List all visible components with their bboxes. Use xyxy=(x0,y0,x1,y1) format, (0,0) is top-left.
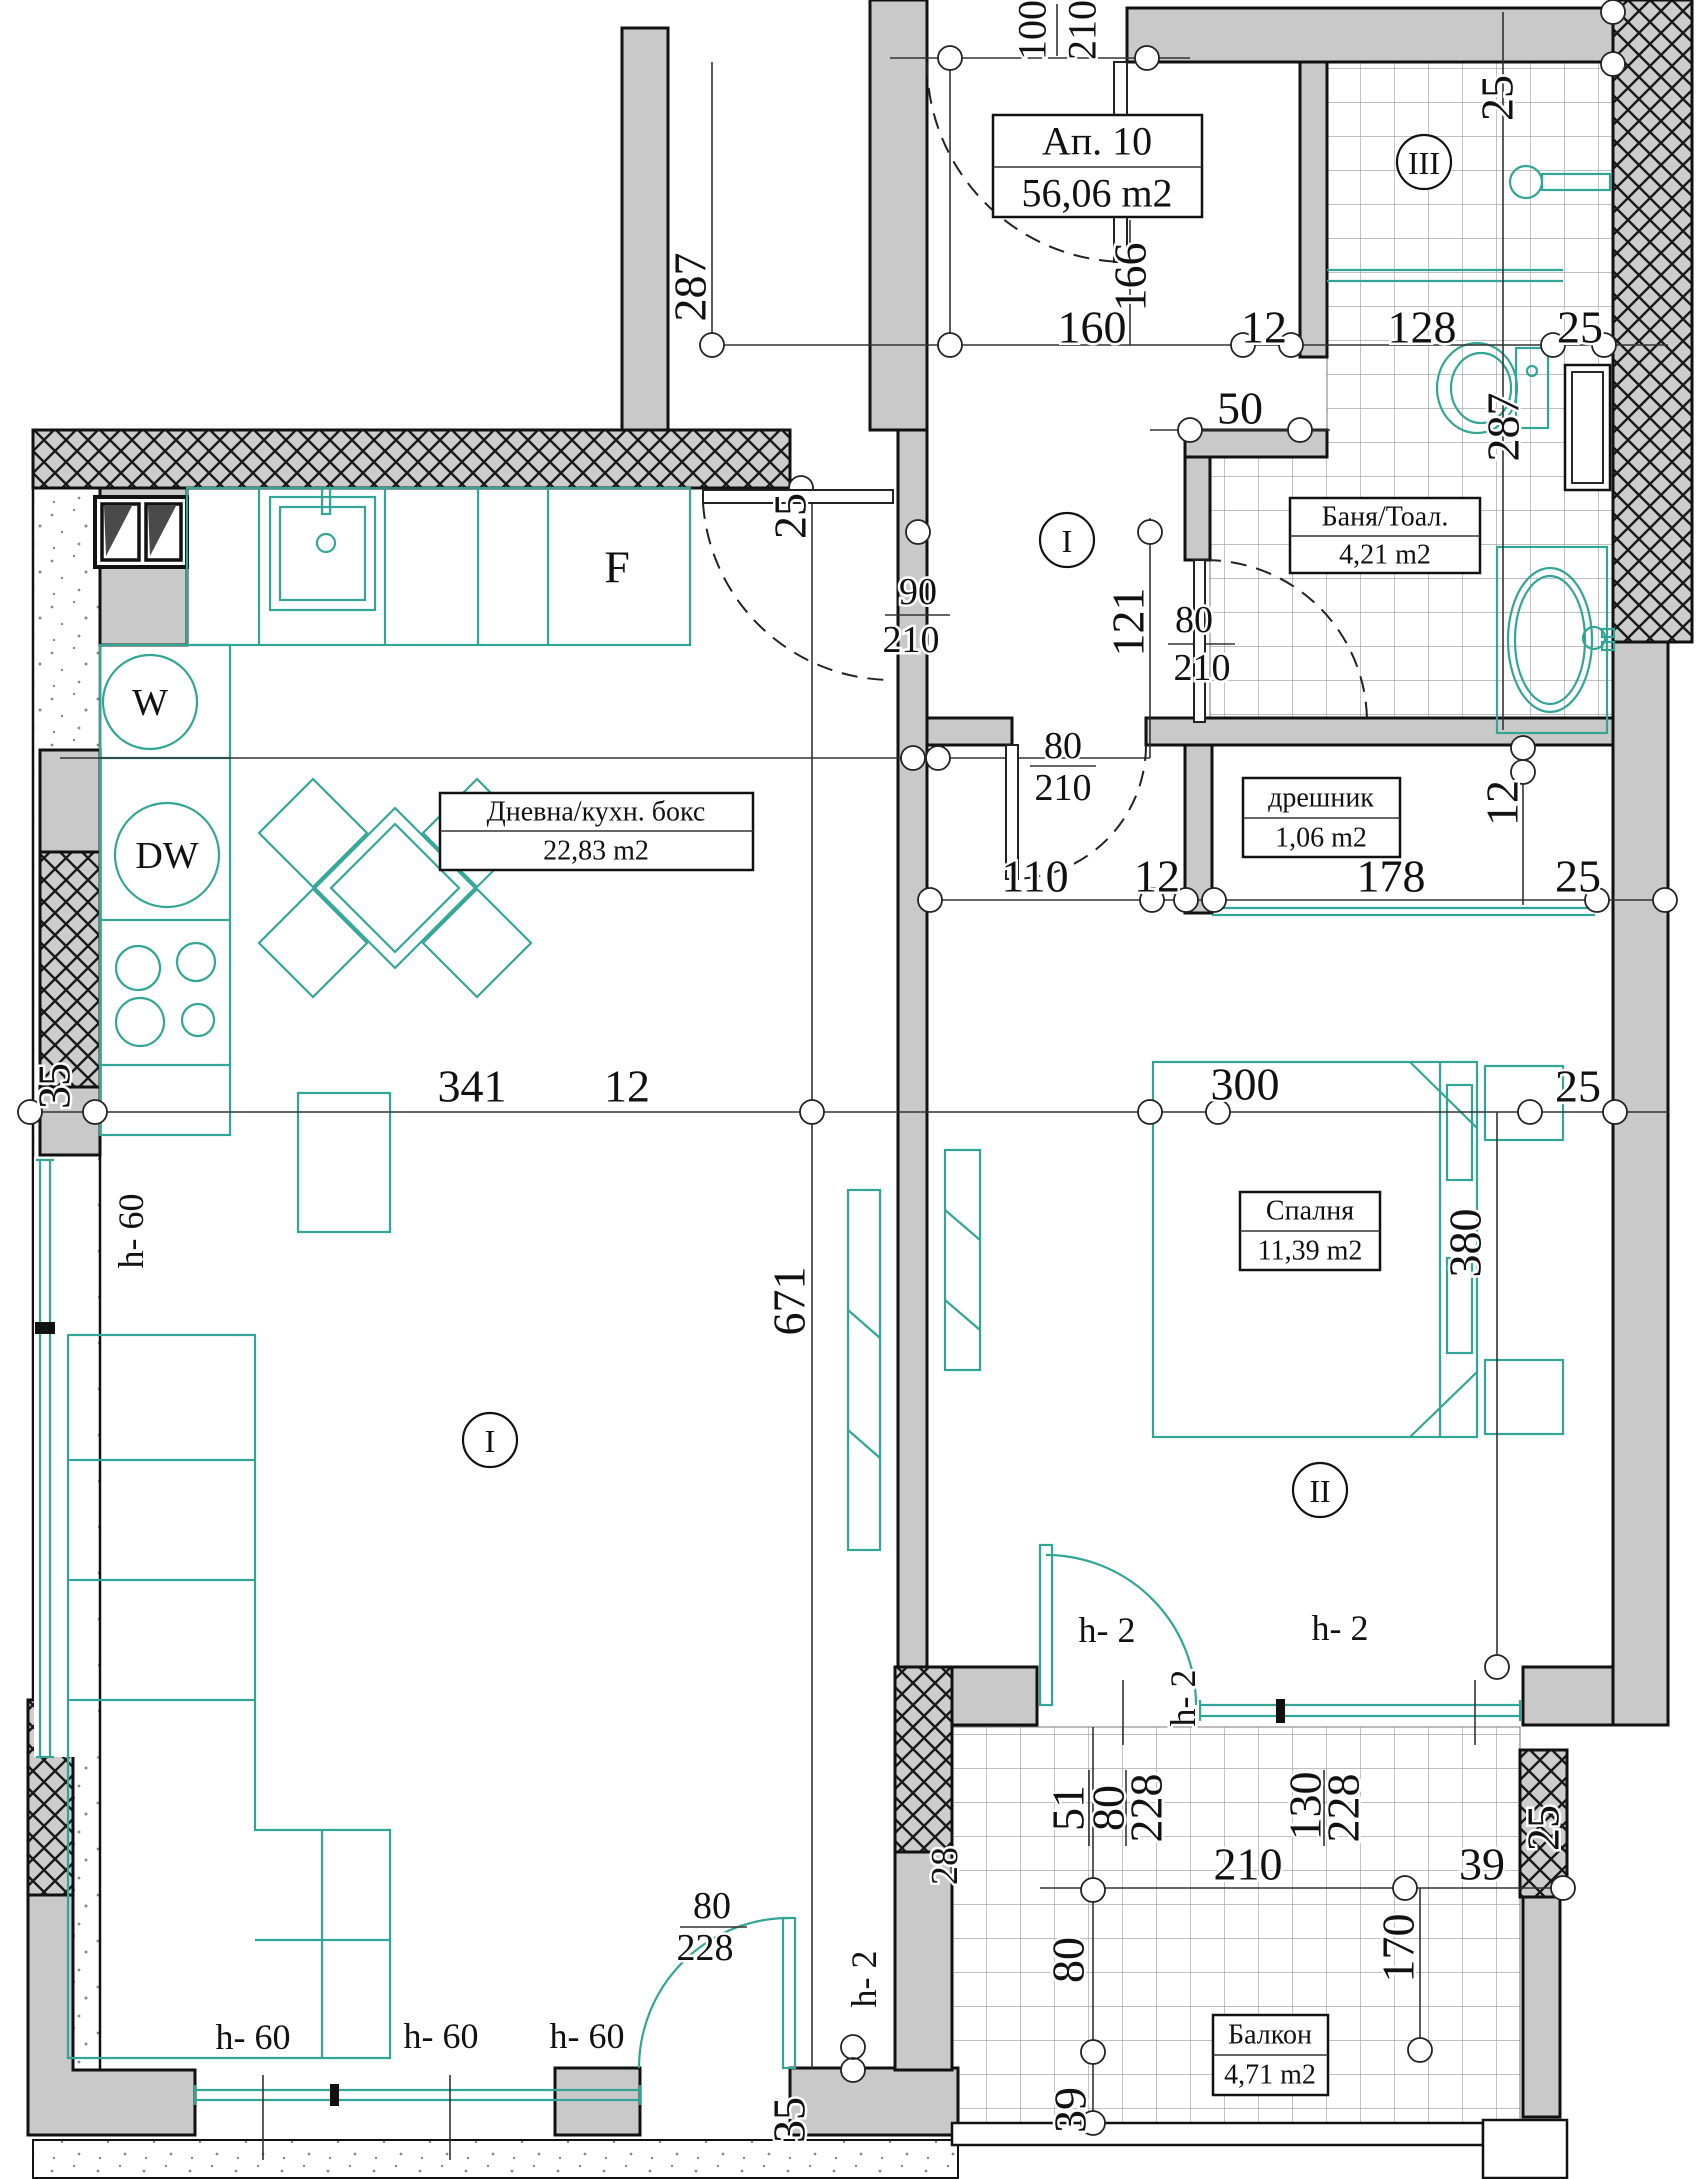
sofa xyxy=(68,1335,390,2058)
vestibule-right-wall xyxy=(870,0,927,430)
dim-label: 12 xyxy=(604,1061,650,1112)
dishwasher-letter: DW xyxy=(135,835,198,877)
dim-label: h- 2 xyxy=(1312,1608,1369,1648)
fridge-letter: F xyxy=(604,542,630,593)
bedroom-bottom-right-wall xyxy=(1523,1667,1613,1725)
tv-console-bedroom xyxy=(945,1150,980,1370)
dim-label: 671 xyxy=(764,1267,815,1336)
floor-plan-page: F W DW xyxy=(0,0,1700,2179)
stove-burners xyxy=(116,943,215,1046)
dim-label: 210 xyxy=(1214,1839,1283,1890)
balcony-corner-step xyxy=(1483,2120,1567,2178)
bathroom-door-leaf xyxy=(1194,560,1205,722)
dim-label: 25 xyxy=(765,493,816,539)
washer-letter: W xyxy=(132,682,168,724)
dim-label: 25 xyxy=(1555,851,1601,902)
room-label-bedroom: Спалня 11,39 m2 xyxy=(1240,1192,1380,1270)
dim-label: 160 xyxy=(1058,302,1127,353)
living-balcony-door-leaf xyxy=(783,1918,795,2068)
dim-label: 170 xyxy=(1373,1914,1424,1983)
vestibule-left-wall xyxy=(622,28,668,430)
dim-label: 25 xyxy=(1472,75,1523,121)
closet-rail xyxy=(1212,908,1595,915)
dim-label: 300 xyxy=(1211,1059,1280,1110)
dim-label: 25 xyxy=(1518,1805,1569,1851)
left-hatched-pier xyxy=(40,852,100,1087)
dim-label: 210 xyxy=(1174,647,1231,689)
room-label-bath: Баня/Тоал. 4,21 m2 xyxy=(1290,498,1480,573)
dim-label: 12 xyxy=(1134,851,1180,902)
bedroom-window-mullion xyxy=(1276,1699,1285,1723)
floor-plan-drawing: F W DW xyxy=(0,0,1700,2179)
dim-label: h- 2 xyxy=(844,1951,884,2008)
bedroom-name: Спалня xyxy=(1266,1196,1354,1227)
bedroom-area: 11,39 m2 xyxy=(1258,1236,1363,1267)
bottom-wall-pier-a xyxy=(555,2068,640,2135)
faucet-icon xyxy=(322,488,330,514)
bedroom-balcony-door-leaf xyxy=(1040,1545,1052,1705)
dim-label: 287 xyxy=(665,253,716,322)
balcony-area: 4,71 m2 xyxy=(1224,2060,1316,2091)
dim-label: 39 xyxy=(1459,1839,1505,1890)
radiator xyxy=(1565,365,1610,490)
dim-label: 228 xyxy=(1121,1774,1172,1843)
dim-label: 341 xyxy=(438,1061,507,1112)
dim-label: 90 xyxy=(899,571,937,613)
left-wall-gray-a xyxy=(40,750,100,852)
apartment-area: 56,06 m2 xyxy=(1021,171,1172,216)
dim-label: 210 xyxy=(1035,767,1092,809)
dim-label: h- 60 xyxy=(111,1194,151,1269)
hall-marker: I xyxy=(1062,523,1073,559)
dim-label: 35 xyxy=(764,2097,815,2143)
balcony-right-pier xyxy=(1523,1897,1560,2117)
coffee-table xyxy=(298,1093,390,1232)
dim-label: 210 xyxy=(1060,0,1105,60)
bathroom-left-upper-wall xyxy=(1300,62,1327,357)
dim-label: 228 xyxy=(1318,1774,1369,1843)
living-marker: I xyxy=(485,1423,496,1459)
room-label-closet: дрешник 1,06 m2 xyxy=(1243,778,1400,857)
dim-label: 80 xyxy=(1043,1937,1094,1983)
dim-label: h- 2 xyxy=(1163,1670,1203,1727)
dim-label: h- 60 xyxy=(550,2016,625,2056)
bath-area: 4,21 m2 xyxy=(1339,540,1431,571)
hall-bottom-wall-b xyxy=(1146,718,1613,745)
dim-label: 380 xyxy=(1440,1209,1491,1278)
dim-label: 39 xyxy=(1045,2087,1096,2133)
bedroom-window-glazing xyxy=(1200,1700,1520,1721)
dim-label: 25 xyxy=(1557,302,1603,353)
title-block: Ап. 10 56,06 m2 xyxy=(993,115,1202,217)
dim-label: 12 xyxy=(1241,302,1287,353)
top-hatched-wall xyxy=(33,430,790,488)
dim-label: h- 60 xyxy=(404,2016,479,2056)
living-area: 22,83 m2 xyxy=(543,836,649,867)
dim-label: 50 xyxy=(1217,383,1263,434)
dim-label: h- 2 xyxy=(1079,1610,1136,1650)
dim-label: 210 xyxy=(883,619,940,661)
tv-console-living xyxy=(848,1190,880,1550)
bath-marker: III xyxy=(1408,145,1440,181)
dim-label: 12 xyxy=(1477,780,1528,826)
bottom-wall-pier-b xyxy=(790,2068,958,2135)
exterior-ground-strip xyxy=(33,2140,958,2178)
bathroom-left-lower-wall xyxy=(1185,457,1210,560)
dim-label: 100 xyxy=(1010,0,1055,60)
left-window-mullion xyxy=(35,1322,55,1334)
room-label-living: Дневна/кухн. бокс 22,83 m2 xyxy=(440,793,753,870)
bedroom-marker: II xyxy=(1309,1473,1330,1509)
dim-label: 228 xyxy=(677,1927,734,1969)
left-window-opening xyxy=(34,1157,98,1757)
dim-label: h- 60 xyxy=(216,2017,291,2057)
apartment-title: Ап. 10 xyxy=(1042,119,1152,164)
dim-label: 178 xyxy=(1357,851,1426,902)
dim-label: 80 xyxy=(693,1885,731,1927)
balcony-rail xyxy=(952,2123,1483,2145)
right-exterior-wall xyxy=(1613,642,1668,1725)
dim-label: 287 xyxy=(1478,393,1529,462)
closet-name: дрешник xyxy=(1268,783,1374,814)
dim-label: 121 xyxy=(1103,588,1154,657)
dim-label: 28 xyxy=(924,1847,966,1885)
bottom-window-mullion xyxy=(330,2084,339,2106)
room-label-balcony: Балкон 4,71 m2 xyxy=(1213,2015,1328,2095)
dim-label: 35 xyxy=(29,1063,80,1109)
hall-bottom-wall-a xyxy=(927,718,1012,745)
right-hatched-wall xyxy=(1613,0,1692,642)
balcony-name: Балкон xyxy=(1228,2020,1312,2051)
dim-label: 80 xyxy=(1175,599,1213,641)
dim-label: 128 xyxy=(1388,302,1457,353)
dim-label: 25 xyxy=(1555,1061,1601,1112)
closet-area: 1,06 m2 xyxy=(1275,823,1367,854)
bath-name: Баня/Тоал. xyxy=(1322,502,1449,533)
kitchen-window-symbol xyxy=(95,497,187,567)
bottom-left-corner-wall xyxy=(28,1895,195,2135)
living-name: Дневна/кухн. бокс xyxy=(487,797,706,828)
bathroom-top-wall xyxy=(1127,8,1613,62)
dim-label: 110 xyxy=(1001,851,1068,902)
balcony-left-hatched-pier xyxy=(895,1667,952,1852)
dim-label: 80 xyxy=(1044,725,1082,767)
